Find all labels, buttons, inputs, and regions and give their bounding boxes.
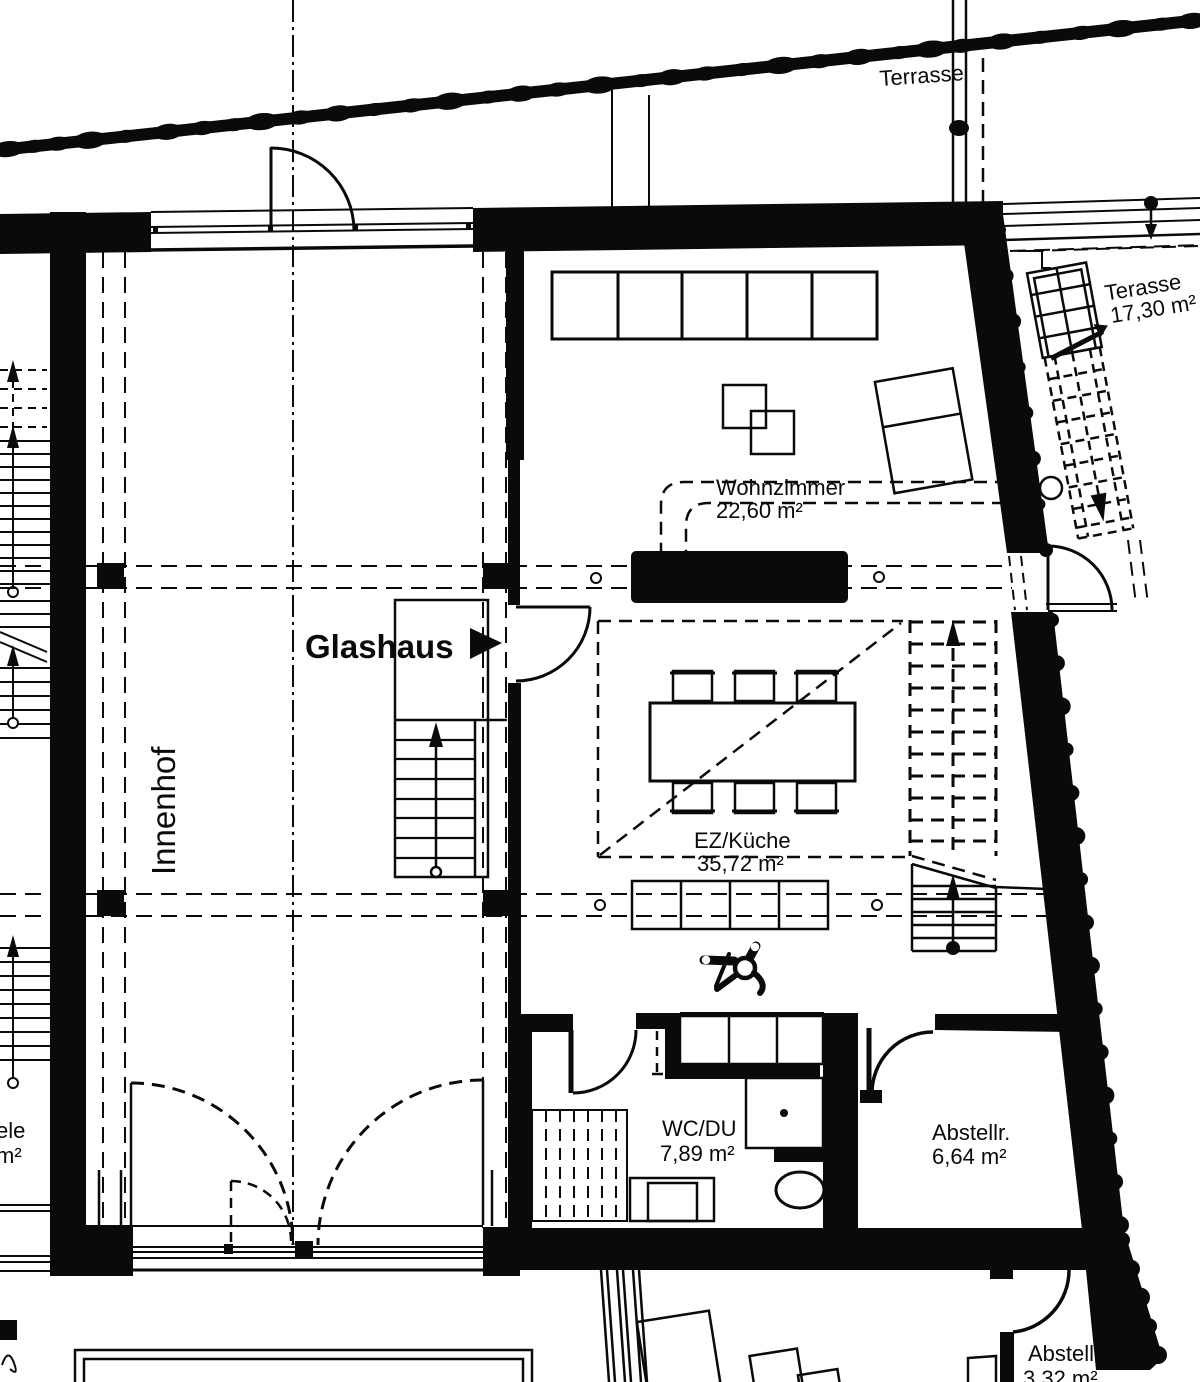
svg-text:Abstell.: Abstell. xyxy=(1028,1341,1100,1366)
svg-text:7,89 m²: 7,89 m² xyxy=(660,1141,735,1166)
svg-text:Wohnzimmer: Wohnzimmer xyxy=(716,475,845,500)
svg-text:ele: ele xyxy=(0,1118,25,1143)
svg-text:6,64 m²: 6,64 m² xyxy=(932,1144,1007,1169)
svg-text:Glashaus: Glashaus xyxy=(305,628,454,665)
svg-text:EZ/Küche: EZ/Küche xyxy=(694,828,791,853)
svg-text:WC/DU: WC/DU xyxy=(662,1116,737,1141)
svg-text:Innenhof: Innenhof xyxy=(145,746,182,875)
svg-text:3,32 m²: 3,32 m² xyxy=(1023,1366,1098,1382)
svg-text:35,72 m²: 35,72 m² xyxy=(697,851,784,876)
svg-text:Abstellr.: Abstellr. xyxy=(932,1120,1010,1145)
svg-text:m²: m² xyxy=(0,1143,22,1168)
